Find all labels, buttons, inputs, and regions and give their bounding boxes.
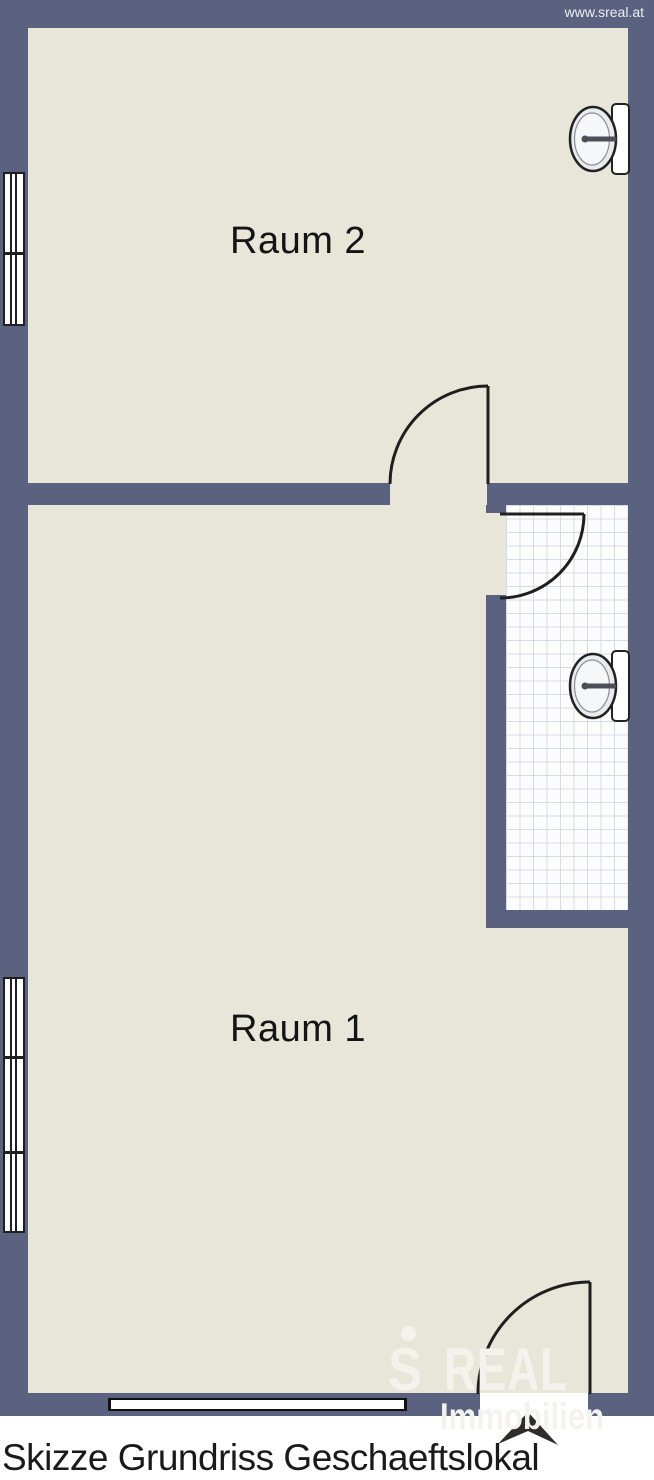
logo-subtitle-text: Immobilien bbox=[440, 1398, 604, 1435]
door-swing-icon bbox=[500, 514, 584, 598]
brand-logo: S REAL Immobilien bbox=[388, 1318, 648, 1442]
website-watermark: www.sreal.at bbox=[565, 4, 644, 20]
sink-icon bbox=[570, 104, 629, 174]
floorplan-canvas: Raum 2 Raum 1 www.sreal.at S REAL Immobi… bbox=[0, 0, 654, 1480]
sink-icon bbox=[570, 651, 629, 721]
room-label-raum2: Raum 2 bbox=[230, 220, 366, 263]
door-swing-icon bbox=[390, 386, 488, 484]
sparkasse-s-icon: S bbox=[388, 1340, 422, 1400]
logo-brand-text: REAL bbox=[444, 1340, 568, 1400]
room-label-raum1: Raum 1 bbox=[230, 1008, 366, 1051]
plan-caption: Skizze Grundriss Geschaeftslokal bbox=[2, 1437, 539, 1479]
